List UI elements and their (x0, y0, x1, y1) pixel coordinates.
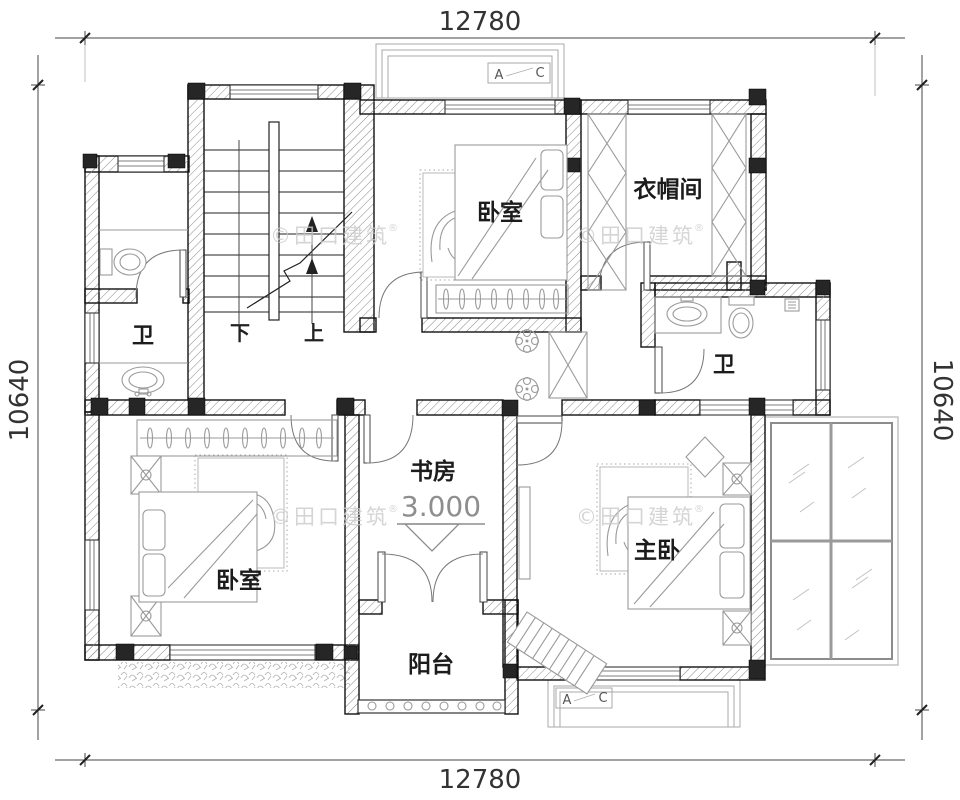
dimension-left: 10640 (5, 55, 45, 740)
nightstand-symbol-4 (723, 611, 751, 645)
ceiling-light-icon (516, 330, 539, 353)
watermark-text-4: ©田口建筑 (576, 505, 696, 529)
watermark-text: ©田口建筑 (270, 224, 390, 248)
section-marker-a2: A (563, 693, 572, 708)
section-marker-a: A (495, 68, 504, 83)
label-bath-left: 卫 (132, 324, 154, 349)
watermark-text-2: ©田口建筑 (576, 224, 696, 248)
watermark-text-3: ©田口建筑 (270, 505, 390, 529)
stair-up-label: 上 (304, 321, 324, 345)
label-bedroom-bottom: 卧室 (216, 567, 262, 594)
bath-left-fixtures (99, 230, 188, 396)
dimension-right: 10640 (915, 55, 957, 740)
nightstand-symbol (131, 456, 161, 494)
dim-top-value: 12780 (439, 7, 522, 37)
label-balcony: 阳台 (408, 651, 454, 678)
vegetation-strip (118, 662, 350, 688)
stair-down-label: 下 (230, 321, 250, 345)
nightstand-symbol-3 (723, 463, 751, 495)
dimension-top: 12780 (55, 7, 905, 96)
dimension-bottom: 12780 (55, 753, 905, 795)
label-cloakroom: 衣帽间 (634, 176, 703, 203)
decor-diamond (686, 437, 724, 477)
svg-text:®: ® (388, 504, 398, 515)
bath-right-fixtures (655, 297, 799, 338)
svg-text:®: ® (694, 223, 704, 234)
svg-text:®: ® (388, 223, 398, 234)
section-marker-c: C (535, 66, 544, 81)
sink-symbol-2 (667, 297, 707, 326)
label-bath-right: 卫 (713, 353, 735, 378)
sink-symbol (99, 363, 188, 396)
svg-text:®: ® (694, 504, 704, 515)
right-terrace-window (765, 417, 898, 665)
bedroom-top-furniture (420, 145, 568, 313)
hall-fixtures (516, 330, 588, 401)
toilet-symbol-2 (729, 297, 754, 338)
label-master: 主卧 (634, 538, 680, 564)
toilet-symbol (100, 249, 146, 275)
floor-plan-page: 12780 12780 10640 10640 A C A C (0, 0, 960, 800)
study-furniture (519, 487, 530, 579)
lounge-chair-symbol (507, 612, 606, 694)
balcony-railing (358, 700, 505, 713)
ceiling-light-icon-2 (516, 378, 539, 401)
elevation-marker: 3.000 (397, 490, 485, 551)
label-study: 书房 (410, 458, 456, 485)
elevation-value: 3.000 (401, 490, 481, 523)
dim-bottom-value: 12780 (439, 765, 522, 795)
top-bay-window: A C (376, 44, 564, 98)
floor-plan-drawing: 12780 12780 10640 10640 A C A C (0, 0, 960, 800)
section-marker-c2: C (598, 691, 607, 706)
shaft-cabinet (549, 332, 587, 398)
dim-left-value: 10640 (5, 359, 35, 442)
shower-head-icon (785, 299, 799, 311)
dim-right-value: 10640 (927, 359, 957, 442)
label-bedroom-top: 卧室 (477, 199, 523, 226)
stair-stringer (269, 122, 279, 320)
master-furniture (507, 437, 751, 694)
